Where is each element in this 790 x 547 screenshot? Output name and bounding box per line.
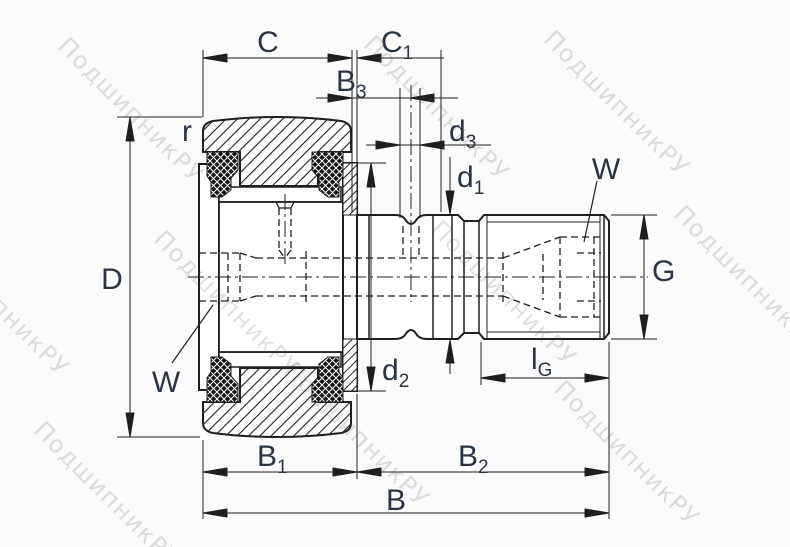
label-C: C: [257, 26, 279, 59]
label-d1: d1: [457, 161, 484, 199]
label-G: G: [652, 255, 675, 288]
collar-hatch-top: [343, 163, 357, 215]
collar-hatch-bottom: [343, 339, 357, 391]
technical-drawing-page: C C1 B3 d3 d1 d2 D r W W G lG B1 B2 B По…: [0, 0, 790, 547]
label-D: D: [101, 263, 123, 296]
label-lG: lG: [531, 343, 552, 381]
label-d2: d2: [382, 354, 409, 392]
label-W-left: W: [152, 366, 181, 399]
cam-follower-bearing-drawing: C C1 B3 d3 d1 d2 D r W W G lG B1 B2 B: [0, 0, 790, 547]
label-r: r: [182, 115, 192, 148]
label-C1: C1: [381, 26, 413, 64]
label-B2: B2: [458, 440, 489, 478]
label-B: B: [386, 484, 406, 517]
label-d3: d3: [449, 115, 476, 153]
dim-d3: [366, 88, 491, 218]
label-B1: B1: [257, 440, 288, 478]
label-W-right: W: [592, 153, 621, 186]
label-B3: B3: [336, 65, 367, 103]
